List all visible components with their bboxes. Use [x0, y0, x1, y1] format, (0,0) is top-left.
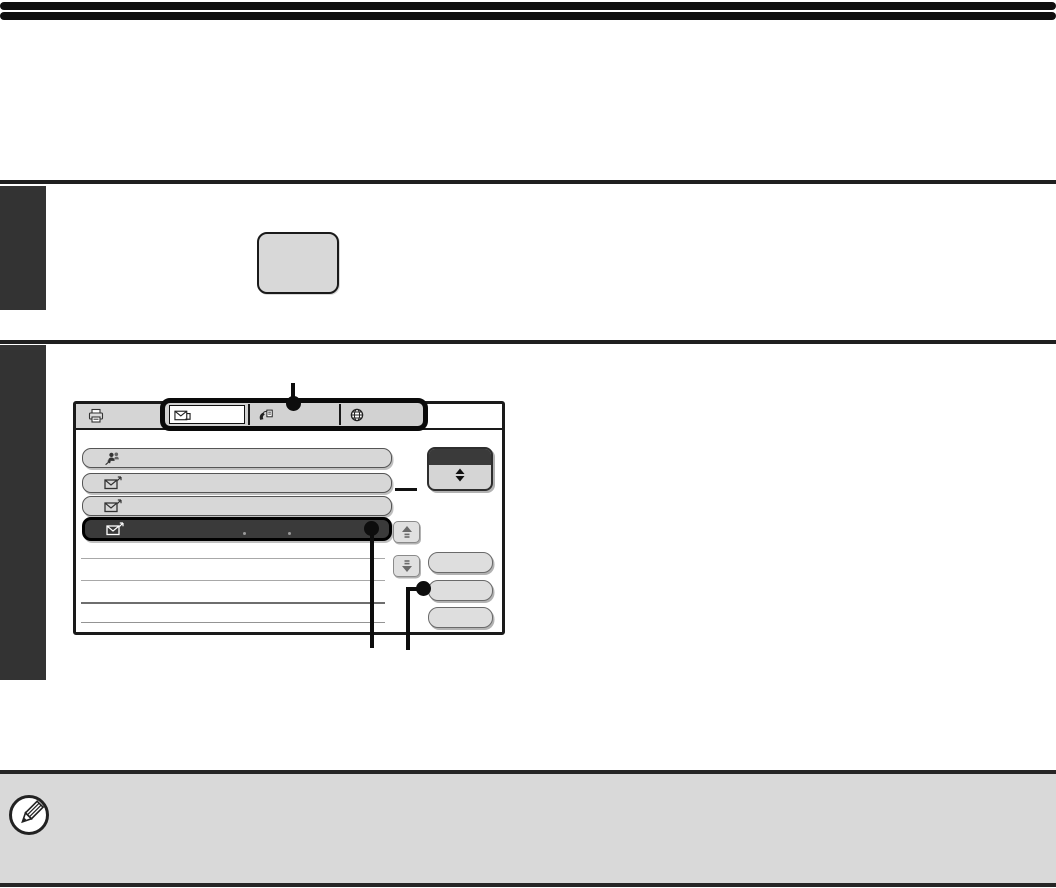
group-address-icon [104, 451, 121, 466]
screen-topbar-left [76, 404, 162, 428]
list-separator [81, 580, 385, 581]
side-button-1[interactable] [428, 552, 493, 573]
address-list-item-email[interactable] [82, 496, 392, 516]
tab-email[interactable] [169, 405, 245, 424]
selected-item-callout-dot [364, 521, 379, 536]
fax-tab-icon [258, 408, 274, 422]
side-button-3[interactable] [428, 607, 493, 628]
header-rule-top [0, 2, 1056, 10]
scroll-up-button[interactable] [393, 521, 420, 543]
side-button-callout-vline [406, 589, 410, 650]
internet-fax-tab-icon [350, 408, 364, 422]
email-address-icon [106, 522, 124, 536]
hardware-key-button[interactable] [257, 232, 339, 294]
printer-icon [88, 408, 104, 424]
arrow-down-icon [400, 559, 414, 573]
list-separator [81, 602, 385, 604]
step1-rule [0, 180, 1056, 184]
header-rule-bottom [0, 12, 1056, 20]
sort-box-callout-dash [395, 488, 417, 491]
touch-screen [73, 401, 505, 635]
arrow-up-icon [400, 525, 414, 539]
step1-number-block [0, 186, 46, 310]
tab-internet-fax[interactable] [341, 408, 423, 422]
manual-page [0, 0, 1056, 888]
list-separator [81, 558, 385, 559]
note-box [0, 770, 1056, 887]
list-separator [81, 622, 385, 623]
side-button-2[interactable] [428, 580, 493, 601]
step2-number-block [0, 345, 46, 680]
double-diamond-icon [454, 468, 466, 482]
email-address-icon [104, 499, 122, 513]
address-list-item-group[interactable] [82, 448, 392, 468]
address-list-item-email[interactable] [82, 473, 392, 493]
step2-rule [0, 340, 1056, 344]
email-tab-icon [174, 408, 191, 422]
sort-scroll-box[interactable] [427, 447, 493, 491]
tab-callout-dot [286, 396, 301, 411]
selected-item-callout-line [370, 531, 374, 648]
scroll-down-button[interactable] [393, 555, 420, 577]
side-button-callout-dot [416, 581, 431, 596]
pencil-note-icon [7, 793, 51, 837]
address-list-item-email-selected[interactable] [82, 517, 392, 541]
sort-scroll-box-header [429, 449, 491, 465]
email-address-icon [104, 476, 122, 490]
